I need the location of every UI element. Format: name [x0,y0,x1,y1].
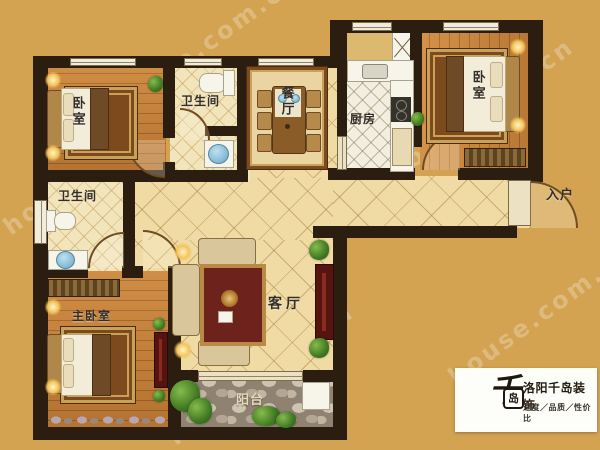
stove-burner [396,111,407,121]
wall-bathroom-left-right [123,182,135,278]
dining-chair [306,134,321,152]
wall-bathroom-top-divider [205,126,237,136]
bedroom2-blanket [446,56,464,132]
living-plant [309,240,329,260]
living-plant [309,338,329,358]
toilet-icon [54,212,76,230]
tv-cabinet [315,264,334,340]
master-tv-cabinet [154,332,168,388]
toilet-icon [199,73,226,93]
wall-bedroom2-bottom [458,168,543,180]
floor-plan-canvas: house.com.cn house.com.cn house.com.cn h… [0,0,600,450]
bedroom2-pillow [490,62,503,88]
kitchen-shelf [392,128,412,166]
wall-right-exterior [528,20,543,182]
room-label-bedroom-top-left: 卧室 [70,96,84,128]
room-label-balcony: 阳台 [236,394,264,408]
balcony-table [302,382,330,410]
room-label-kitchen: 厨房 [350,113,376,126]
bedroom1-blanket [90,88,109,150]
balcony-plant [276,412,296,428]
room-label-entry: 入户 [546,189,574,203]
balcony-sliding-door [198,371,303,381]
room-label-dining: 餐厅 [279,86,293,118]
window-line [41,200,42,244]
bedroom2-pillow [490,96,503,122]
entry-threshold [508,180,531,226]
wall-bottom-exterior [33,427,347,440]
washbasin-icon [56,251,75,269]
living-floor-lamp [174,340,192,360]
master-wardrobe [48,279,120,297]
room-label-master-bedroom: 主卧室 [72,310,111,323]
window-line [443,27,499,28]
master-pebble-decor [48,414,166,426]
room-label-living-room: 客厅 [268,297,304,312]
master-plant [153,390,165,402]
tv-cabinet-detail [322,273,326,331]
dining-chair [306,112,321,130]
window-bedroom2 [443,22,499,31]
dining-candle [285,124,290,129]
wall-bedroom1-right [163,56,175,138]
bedroom1-plant [148,76,163,92]
company-logo-plate: 千 岛 洛阳千岛装饰 速度／品质／性价比 [455,368,597,432]
hall-floor [135,178,333,240]
bedroom2-wall-lamp [510,116,526,134]
wall-master-top-b [122,266,143,278]
master-blanket [92,334,111,396]
window-line [184,62,222,63]
kitchen-sink-icon [362,64,388,79]
dining-chair [257,90,272,108]
wall-living-right [333,226,347,440]
dining-chair [257,134,272,152]
tv-cabinet-detail [159,339,162,381]
window-line [70,62,136,63]
dining-chair [306,90,321,108]
living-floor-lamp [174,242,192,262]
window-bathroom-top [184,58,222,66]
company-slogan: 速度／品质／性价比 [523,402,597,424]
window-dining [258,58,314,66]
master-plant [153,318,165,330]
wall-upper-bottom [33,170,248,182]
window-kitchen [352,22,392,31]
door-line [198,376,303,377]
balcony-plant [188,398,212,424]
wall-kitchen-left [337,56,347,136]
window-bedroom1 [70,58,136,66]
bedroom2-wall-lamp [510,38,526,56]
washbasin-icon [208,144,229,164]
dining-chair [257,112,272,130]
bedroom2-wardrobe [464,148,526,167]
window-line [352,27,392,28]
rug-medallion [221,290,238,307]
master-pillow [63,364,74,388]
kitchen-sliding-door [337,136,347,170]
sofa-left [172,264,200,336]
entry-corridor-floor [333,176,530,228]
master-pillow [63,338,74,362]
room-label-bathroom-left: 卫生间 [58,190,97,203]
room-label-bathroom-top: 卫生间 [181,95,220,108]
stove-burner [396,100,407,111]
living-rug [200,264,266,346]
logo-mark-boxed-glyph: 岛 [503,388,524,409]
door-line [342,136,343,170]
master-wall-lamp [45,298,61,316]
coffee-table [218,311,233,323]
bedroom2-plant [411,112,424,126]
toilet-tank [223,70,235,96]
bedroom1-wall-lamp [45,71,61,89]
window-line [258,62,314,63]
master-wall-lamp [45,378,61,396]
bedroom1-wall-lamp [45,144,61,162]
company-logo-mark: 千 岛 [489,374,521,424]
stove-icon [391,97,411,122]
room-label-bedroom-top-right: 卧室 [470,70,484,102]
sofa-top [198,238,256,266]
